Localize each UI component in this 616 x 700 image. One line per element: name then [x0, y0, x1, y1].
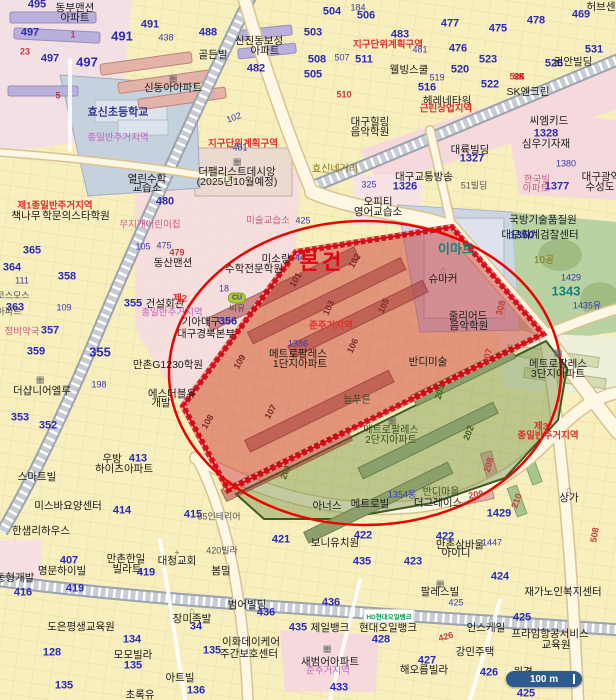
map-label: 미스바요양센터 [34, 501, 102, 512]
map-label: 102 [225, 111, 242, 125]
map-label: 516 [418, 83, 436, 94]
map-label: 504 [323, 7, 341, 18]
map-label: 더샵니어엘루 [13, 386, 71, 397]
map-label: 기아대구 [182, 317, 221, 328]
map-label: 씨엠키드 [530, 116, 569, 127]
subject-property-label: 본건 [300, 246, 345, 276]
map-label: 1326 [393, 182, 417, 193]
map-label: 1350 [510, 231, 534, 242]
map-label: 421 [272, 535, 290, 546]
map-label: 128 [43, 648, 61, 659]
map-label: 531 [585, 45, 603, 56]
map-label: 음악학원 [351, 127, 390, 138]
map-label: 426 [480, 668, 498, 679]
map-label: 수성도 [586, 182, 615, 193]
map-label: 522 [481, 80, 499, 91]
map-label: 슈마커 [429, 274, 458, 285]
map-label: 종일반주거지역 [517, 431, 578, 441]
label-layer: 동부맨션아파트495497497497491491438488골든빌신진동보성아… [0, 0, 616, 700]
map-label: 497 [21, 28, 39, 39]
map-label: 23 [20, 48, 30, 57]
map-label: 스마트빌 [18, 472, 57, 483]
map-label: 482 [247, 64, 265, 75]
map-label: 511 [355, 55, 373, 66]
map-label: 동형개발 [0, 573, 34, 584]
map-label: 아파트 [0, 308, 21, 317]
map-label: 1단지아파트 [273, 359, 327, 370]
map-label: 198 [91, 381, 106, 390]
map-label: 아너스 [313, 501, 342, 512]
scale-tick [573, 674, 575, 684]
map-label: 205 [434, 384, 447, 401]
map-label: 106 [346, 337, 361, 354]
map-label: 357 [41, 326, 59, 337]
map-label: 435 [353, 557, 371, 568]
map-label: 교육원 [542, 640, 571, 651]
map-label: 메트로빌 [351, 499, 390, 510]
map-label: 505 [304, 70, 322, 81]
map-label: 프라임항공서비스 [511, 629, 588, 640]
map-label: 208 [483, 457, 496, 474]
apartment-icon: ▦ [323, 645, 332, 654]
map-label: 435 [289, 623, 307, 634]
map-label: 111 [15, 277, 29, 286]
map-label: 488 [199, 28, 217, 39]
map-label: 인스케일 [467, 623, 506, 634]
map-label: 475 [489, 24, 507, 35]
map-label: 제2 [173, 294, 187, 304]
map-label: 353 [11, 413, 29, 424]
map-label: 135 [203, 646, 221, 657]
map-label: 491 [141, 20, 159, 31]
map-label: 코스모스 [0, 292, 30, 301]
map-label: 1 [70, 31, 75, 40]
map-label: 웰빙스쿨 [390, 65, 429, 76]
map-label: 늘푸른 [343, 396, 371, 406]
map-label: 358 [58, 272, 76, 283]
map-label: 355 [89, 346, 111, 359]
map-label: 478 [527, 16, 545, 27]
map-label: 425 [448, 599, 463, 608]
map-label: 365 [23, 246, 41, 257]
map-label: 523 [479, 55, 497, 66]
map-label: 봄밀 [211, 566, 230, 577]
map-label: 1343 [552, 285, 581, 298]
map-label: 364 [3, 263, 21, 274]
map-label: 한샘리하우스 [12, 526, 70, 537]
map-label: 초록유 [126, 690, 155, 700]
map-label: 507 [334, 54, 349, 63]
map-label: 1435유 [573, 302, 601, 311]
map-label: 308 [495, 300, 508, 317]
map-label: 476 [449, 44, 467, 55]
map-label: 134 [123, 635, 141, 646]
map-label: 근린상업지역 [420, 104, 472, 114]
map-label: 508 [308, 55, 326, 66]
map-label: 동산맨션 [154, 258, 193, 269]
scale-label: 100 m [530, 674, 558, 685]
map-label: 202 [462, 424, 476, 441]
map-label: 503 [304, 28, 322, 39]
map-label: 419 [66, 584, 84, 595]
map-label: 개발 [151, 398, 170, 409]
map-canvas[interactable]: 동부맨션아파트495497497497491491438488골든빌신진동보성아… [0, 0, 616, 700]
map-label: 109 [232, 353, 247, 371]
map-label: 184 [350, 4, 365, 13]
map-label: 355 [124, 299, 142, 310]
map-label: 지구단위계획구역 [353, 40, 423, 50]
map-label: 대구경북본부 [177, 329, 235, 340]
map-label: 18 [219, 285, 229, 294]
map-label: 반디미술 [409, 357, 448, 368]
map-label: 1377 [545, 182, 569, 193]
map-label: 109 [56, 304, 71, 313]
map-label: 심우기자재 [522, 139, 570, 150]
map-label: 510 [336, 91, 351, 100]
map-label: 이화데이케어 [222, 637, 280, 648]
map-label: SK엔크린 [507, 87, 550, 98]
map-label: 아파트 [251, 46, 280, 57]
map-label: 55인테리어 [197, 513, 240, 522]
map-label: 425 [517, 689, 535, 700]
map-label: 재가노인복지센터 [524, 587, 601, 598]
map-label: 이마트 [438, 243, 474, 256]
map-label: 무지개어린이집 [119, 220, 180, 230]
map-label: 씨유 [229, 305, 246, 314]
map-label: 419 [137, 568, 155, 579]
sk-encrean-icon: SK [513, 73, 524, 82]
map-label: 준주거지역 [309, 321, 353, 331]
map-label: 음악학원 [450, 321, 489, 332]
map-label: 2단지아파트 [365, 436, 417, 446]
map-label: 종일반주거지역 [87, 133, 148, 143]
cu-store-badge: CU [228, 293, 246, 304]
map-label: 허브센 [587, 2, 616, 13]
map-label: 209 [468, 489, 484, 500]
map-label: 준주거지역 [306, 666, 350, 676]
map-label: 105 [377, 297, 392, 314]
map-label: 414 [113, 506, 131, 517]
map-label: 102 [347, 252, 362, 270]
map-label: 325 [361, 181, 376, 190]
map-label: 424 [491, 572, 509, 583]
map-label: 강민주택 [456, 647, 495, 658]
map-label: 팔레스빌 [421, 587, 460, 598]
map-label: 정비약국 [5, 327, 40, 337]
map-label: 도은평생교육원 [47, 622, 115, 633]
map-label: 더그레이스 [414, 498, 462, 509]
map-label: 425 [513, 613, 531, 624]
map-label: 428 [372, 635, 390, 646]
map-label: 하이츠아파트 [95, 464, 153, 475]
map-label: 433 [330, 683, 348, 694]
map-label: 210 [510, 492, 524, 509]
map-label: 108 [200, 413, 215, 431]
map-label: 201 [279, 463, 293, 480]
map-label: 479 [169, 249, 184, 258]
map-label: 3단지아파트 [531, 369, 585, 380]
map-label: 1447 [482, 539, 502, 548]
map-label: 아트빌 [166, 673, 195, 684]
map-label: 보니유치원 [311, 538, 359, 549]
map-label: 497 [76, 56, 98, 69]
map-label: 10공 [534, 256, 554, 266]
map-label: 426 [438, 631, 455, 644]
map-label: 480 [156, 197, 174, 208]
map-label: 107 [263, 403, 278, 421]
map-label: 국방기술품질원 [509, 215, 577, 226]
map-label: 416 [14, 588, 32, 599]
map-label: 미술교습소 [246, 216, 290, 226]
map-label: 반디마을 [423, 488, 460, 498]
map-label: 34 [190, 622, 202, 633]
map-label: 1327 [460, 154, 484, 165]
map-label: 아이디 [442, 548, 471, 559]
map-label: 현대오일뱅크 [359, 623, 417, 634]
map-label: 학문의스타학원 [42, 211, 110, 222]
map-label: 효신초등학교 [88, 108, 149, 119]
map-label: 5 [55, 92, 60, 101]
map-label: 497 [41, 54, 59, 65]
apartment-icon: ▦ [554, 349, 563, 358]
map-label: 교습소 [133, 183, 162, 194]
map-label: 136 [187, 686, 205, 697]
map-label: 51빌딩 [461, 182, 488, 191]
map-label: 103 [322, 299, 337, 316]
map-label: 책나무 [12, 211, 41, 222]
map-label: 495 [28, 0, 46, 11]
map-label: 명문하이빌 [38, 566, 86, 577]
map-label: 520 [451, 65, 469, 76]
map-label: 1354동 [388, 491, 416, 500]
map-label: 제일뱅크 [311, 623, 350, 634]
map-label: 508 [589, 527, 600, 543]
map-label: 권안빌딩 [554, 57, 593, 68]
map-label: 만촌G1230학원 [133, 360, 203, 371]
map-label: 상가 [559, 493, 578, 504]
scale-bar: 100 m [506, 671, 582, 687]
map-label: 골든빌 [199, 50, 228, 61]
map-label: 영어교습소 [354, 207, 402, 218]
map-label: (2025년10월예정) [197, 177, 278, 188]
map-label: 1380 [556, 160, 576, 169]
map-label: 아파트 [61, 13, 90, 24]
map-label: 438 [158, 34, 173, 43]
map-label: 307 [482, 348, 495, 365]
map-label: 주간보호센터 [220, 649, 278, 660]
map-label: 해오름빌라 [400, 665, 448, 676]
map-label: 356 [219, 317, 237, 328]
map-label: 352 [39, 421, 57, 432]
oilbank-logo: HD현대오일뱅크 [363, 609, 414, 623]
map-label: 420빌라 [206, 547, 238, 556]
map-label: 436 [257, 608, 275, 619]
map-label: 425 [295, 217, 310, 226]
map-label: 423 [404, 557, 422, 568]
map-label: 1386 [288, 340, 308, 349]
map-label: 359 [27, 347, 45, 358]
map-label: 효신네거리 [312, 165, 358, 175]
map-label: 1429 [561, 274, 581, 283]
map-label: 대청교회 [158, 556, 197, 567]
map-label: 477 [441, 19, 459, 30]
map-label: 491 [111, 30, 133, 43]
apartment-icon: ▦ [169, 75, 178, 84]
map-label: 신동아아파트 [144, 83, 202, 94]
map-label: 481 [232, 144, 247, 153]
map-label: 135 [124, 661, 142, 672]
map-label: 135 [55, 681, 73, 692]
map-label: 436 [322, 598, 340, 609]
map-label: 1429 [487, 509, 511, 520]
apartment-icon: ▦ [36, 376, 45, 385]
map-label: 수학전문학원 [225, 264, 283, 275]
map-label: 105 [135, 243, 150, 252]
